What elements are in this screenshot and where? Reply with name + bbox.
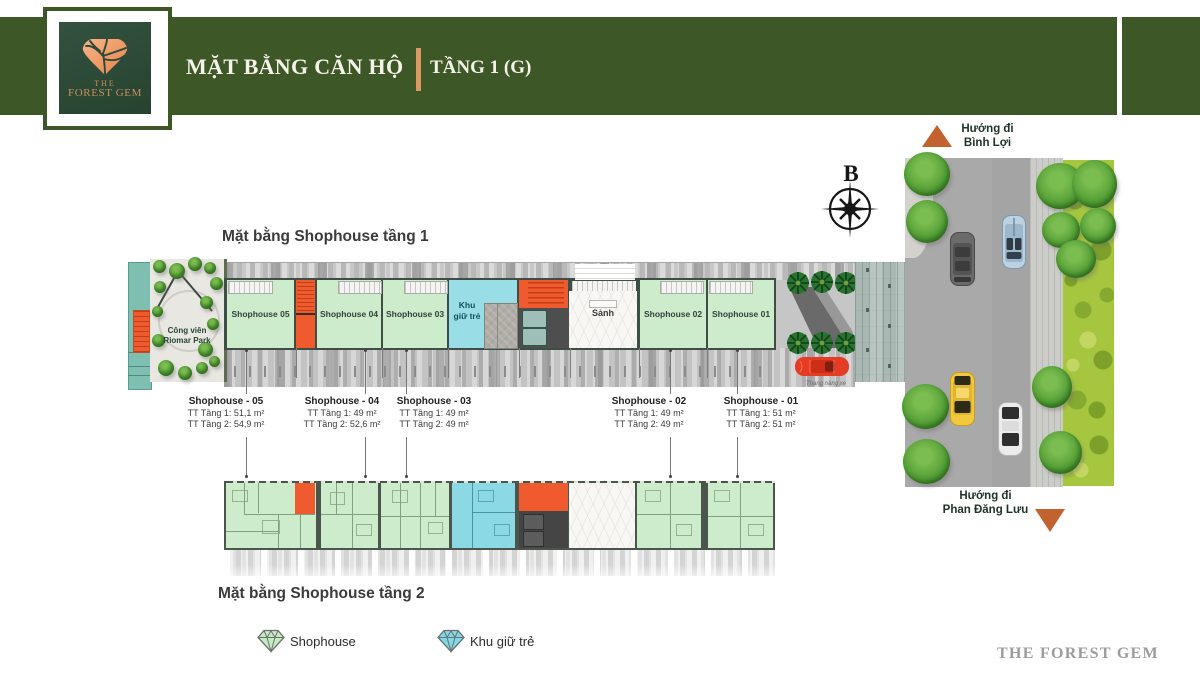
svg-text:B: B xyxy=(843,161,858,186)
